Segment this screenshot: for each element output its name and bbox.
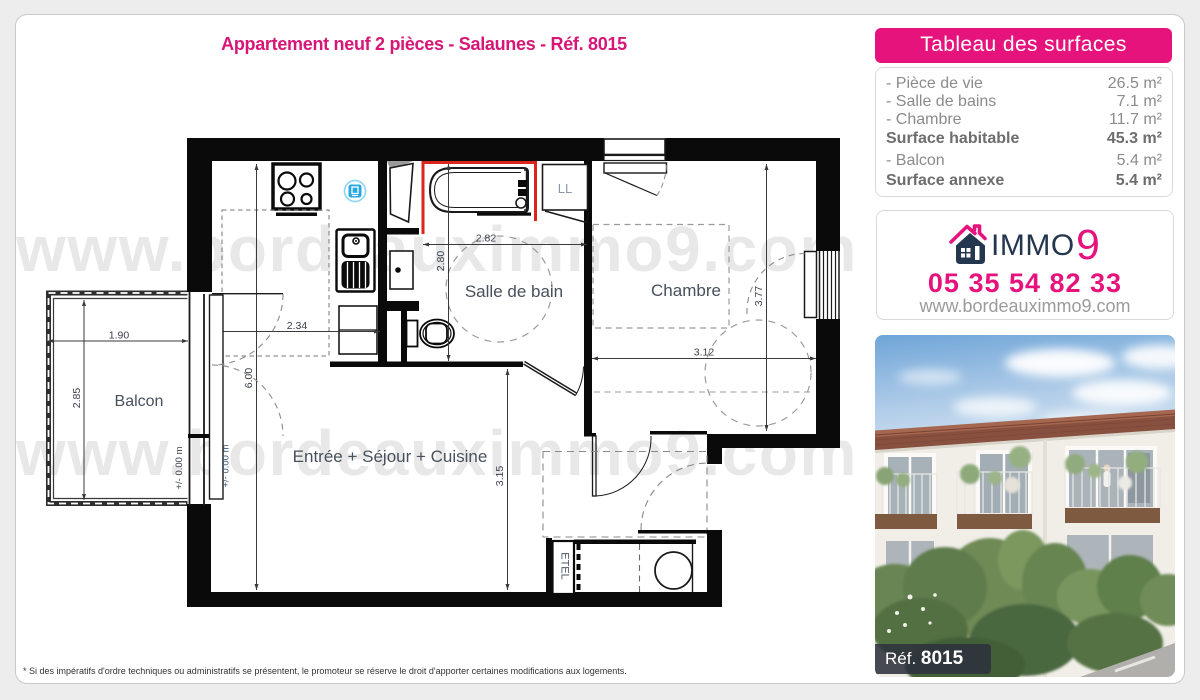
svg-text:Entrée + Séjour + Cuisine: Entrée + Séjour + Cuisine — [293, 447, 488, 466]
svg-text:Salle de bain: Salle de bain — [465, 282, 563, 301]
svg-text:9: 9 — [1076, 221, 1100, 269]
svg-text:3.15: 3.15 — [494, 466, 506, 487]
svg-text:+/- 0.00 m: +/- 0.00 m — [221, 444, 232, 487]
svg-text:2.85: 2.85 — [71, 388, 83, 409]
svg-text:+/- 0.00 m: +/- 0.00 m — [174, 446, 185, 489]
svg-text:2.34: 2.34 — [287, 320, 308, 332]
svg-text:2.80: 2.80 — [435, 251, 447, 272]
svg-text:6.00: 6.00 — [243, 368, 255, 389]
svg-text:3.77: 3.77 — [753, 286, 765, 307]
svg-text:ETEL: ETEL — [559, 552, 571, 580]
svg-text:Chambre: Chambre — [651, 281, 721, 300]
svg-text:Balcon: Balcon — [115, 393, 164, 410]
svg-text:LL: LL — [558, 181, 572, 196]
svg-text:IMMO: IMMO — [991, 229, 1075, 262]
svg-text:2.82: 2.82 — [476, 233, 497, 245]
svg-text:1.90: 1.90 — [109, 330, 130, 342]
svg-text:www.bordeauximmo9.com: www.bordeauximmo9.com — [15, 213, 858, 285]
svg-text:3.12: 3.12 — [694, 347, 715, 359]
